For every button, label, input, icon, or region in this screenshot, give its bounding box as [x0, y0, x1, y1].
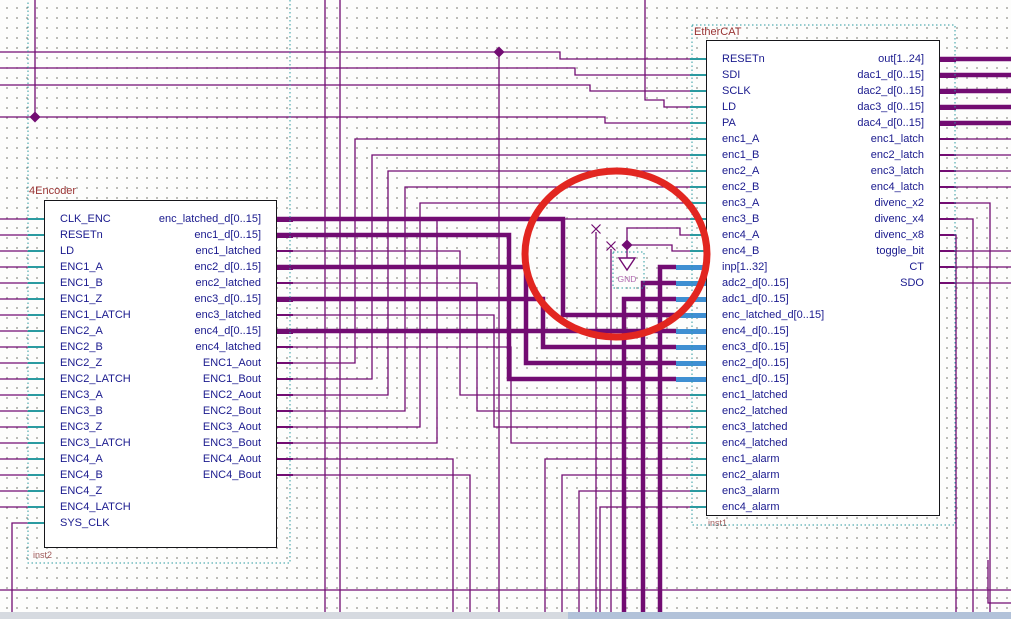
port-ethercat-enc4_A: enc4_A	[722, 229, 759, 241]
port-4encoder-ENC2_A: ENC2_A	[60, 325, 103, 337]
bus-wire[interactable]	[277, 267, 676, 363]
wire[interactable]	[940, 235, 956, 619]
pin-stub-4encoder-ENC1_B[interactable]	[28, 282, 44, 284]
pin-stub-ethercat-SDI[interactable]	[690, 74, 706, 76]
wire[interactable]	[545, 459, 690, 619]
port-4encoder-ENC1_LATCH: ENC1_LATCH	[60, 309, 131, 321]
pin-stub-4encoder-ENC4_A[interactable]	[28, 458, 44, 460]
block-title-4encoder: 4Encoder	[29, 185, 76, 197]
wire[interactable]	[988, 560, 1011, 603]
port-ethercat-enc1_A: enc1_A	[722, 133, 759, 145]
block-title-ethercat: EtherCAT	[694, 26, 741, 38]
pin-stub-4encoder-ENC1_A[interactable]	[28, 266, 44, 268]
wire[interactable]	[277, 155, 690, 379]
port-4encoder-SYS_CLK: SYS_CLK	[60, 517, 110, 529]
pin-stub-4encoder-enc4_d[0..15][interactable]	[277, 329, 293, 334]
port-4encoder-ENC3_LATCH: ENC3_LATCH	[60, 437, 131, 449]
port-ethercat-divenc_x8: divenc_x8	[874, 229, 924, 241]
port-4encoder-enc4_latched: enc4_latched	[196, 341, 261, 353]
port-4encoder-ENC3_B: ENC3_B	[60, 405, 103, 417]
port-ethercat-SCLK: SCLK	[722, 85, 751, 97]
port-4encoder-enc2_latched: enc2_latched	[196, 277, 261, 289]
port-4encoder-ENC3_Bout: ENC3_Bout	[203, 437, 261, 449]
pin-stub-ethercat-enc4_alarm[interactable]	[690, 506, 706, 508]
pin-stub-ethercat-PA[interactable]	[690, 122, 706, 124]
port-ethercat-inp[1..32]: inp[1..32]	[722, 261, 767, 273]
no-connect-marker	[607, 242, 616, 251]
pin-stub-4encoder-ENC3_LATCH[interactable]	[28, 442, 44, 444]
pin-stub-4encoder-enc1_latched[interactable]	[277, 250, 293, 252]
port-4encoder-enc_latched_d[0..15]: enc_latched_d[0..15]	[159, 213, 261, 225]
pin-stub-ethercat-LD[interactable]	[690, 106, 706, 108]
pin-stub-ethercat-enc3_alarm[interactable]	[690, 490, 706, 492]
pin-stub-ethercat-out[1..24][interactable]	[940, 57, 956, 62]
gnd-symbol-icon[interactable]	[619, 258, 635, 270]
bus-wire[interactable]	[277, 299, 676, 347]
port-ethercat-enc4_alarm: enc4_alarm	[722, 501, 779, 513]
wire[interactable]	[277, 187, 690, 411]
pin-stub-4encoder-ENC4_B[interactable]	[28, 474, 44, 476]
port-ethercat-RESETn: RESETn	[722, 53, 765, 65]
pin-stub-ethercat-adc2_d[0..15][interactable]	[676, 281, 706, 286]
pin-stub-ethercat-SCLK[interactable]	[690, 90, 706, 92]
port-ethercat-enc4_d[0..15]: enc4_d[0..15]	[722, 325, 789, 337]
pin-stub-4encoder-ENC2_LATCH[interactable]	[28, 378, 44, 380]
port-ethercat-enc1_latched: enc1_latched	[722, 389, 787, 401]
port-ethercat-toggle_bit: toggle_bit	[876, 245, 924, 257]
junction-dot	[622, 240, 633, 251]
pin-stub-ethercat-divenc_x4[interactable]	[940, 218, 956, 220]
port-4encoder-CLK_ENC: CLK_ENC	[60, 213, 111, 225]
no-connect-marker	[592, 225, 601, 234]
instance-label-ethercat: inst1	[708, 518, 727, 528]
pin-stub-ethercat-enc1_alarm[interactable]	[690, 458, 706, 460]
port-4encoder-enc3_d[0..15]: enc3_d[0..15]	[194, 293, 261, 305]
port-4encoder-ENC2_B: ENC2_B	[60, 341, 103, 353]
pin-stub-ethercat-enc2_d[0..15][interactable]	[676, 361, 706, 366]
wire[interactable]	[0, 52, 690, 59]
selection-box	[613, 252, 644, 288]
port-4encoder-ENC2_Z: ENC2_Z	[60, 357, 102, 369]
port-4encoder-ENC1_Aout: ENC1_Aout	[203, 357, 261, 369]
port-4encoder-ENC1_Bout: ENC1_Bout	[203, 373, 261, 385]
wire[interactable]	[562, 475, 690, 619]
pin-stub-4encoder-ENC2_Bout[interactable]	[277, 410, 293, 412]
port-4encoder-ENC1_A: ENC1_A	[60, 261, 103, 273]
port-ethercat-enc1_B: enc1_B	[722, 149, 759, 161]
pin-stub-4encoder-enc3_d[0..15][interactable]	[277, 297, 293, 302]
pin-stub-ethercat-enc4_latched[interactable]	[690, 442, 706, 444]
port-ethercat-out[1..24]: out[1..24]	[878, 53, 924, 65]
port-4encoder-ENC2_Aout: ENC2_Aout	[203, 389, 261, 401]
port-ethercat-enc1_d[0..15]: enc1_d[0..15]	[722, 373, 789, 385]
pin-stub-4encoder-LD[interactable]	[28, 250, 44, 252]
port-ethercat-LD: LD	[722, 101, 736, 113]
port-ethercat-dac2_d[0..15]: dac2_d[0..15]	[857, 85, 924, 97]
port-ethercat-enc4_latch: enc4_latch	[871, 181, 924, 193]
pin-stub-ethercat-enc_latched_d[0..15][interactable]	[676, 313, 706, 318]
pin-stub-4encoder-enc2_d[0..15][interactable]	[277, 265, 293, 270]
bus-wire[interactable]	[660, 267, 676, 619]
port-4encoder-ENC4_B: ENC4_B	[60, 469, 103, 481]
port-ethercat-enc3_alarm: enc3_alarm	[722, 485, 779, 497]
pin-stub-4encoder-ENC3_A[interactable]	[28, 394, 44, 396]
port-ethercat-enc4_latched: enc4_latched	[722, 437, 787, 449]
port-4encoder-ENC2_LATCH: ENC2_LATCH	[60, 373, 131, 385]
pin-stub-ethercat-enc2_A[interactable]	[690, 170, 706, 172]
port-ethercat-enc1_alarm: enc1_alarm	[722, 453, 779, 465]
port-ethercat-SDO: SDO	[900, 277, 924, 289]
wire[interactable]	[645, 0, 690, 107]
pin-stub-ethercat-enc2_alarm[interactable]	[690, 474, 706, 476]
gnd-symbol-label: GND	[618, 274, 637, 284]
wire[interactable]	[579, 491, 690, 619]
port-4encoder-ENC4_A: ENC4_A	[60, 453, 103, 465]
pin-stub-4encoder-ENC1_Aout[interactable]	[277, 362, 293, 364]
port-4encoder-LD: LD	[60, 245, 74, 257]
port-4encoder-enc4_d[0..15]: enc4_d[0..15]	[194, 325, 261, 337]
port-4encoder-enc1_latched: enc1_latched	[196, 245, 261, 257]
port-ethercat-enc2_latched: enc2_latched	[722, 405, 787, 417]
port-ethercat-adc1_d[0..15]: adc1_d[0..15]	[722, 293, 789, 305]
pin-stub-ethercat-enc2_latch[interactable]	[940, 154, 956, 156]
wire[interactable]	[277, 139, 690, 363]
port-ethercat-enc2_d[0..15]: enc2_d[0..15]	[722, 357, 789, 369]
port-ethercat-CT: CT	[909, 261, 924, 273]
pin-stub-ethercat-enc3_latched[interactable]	[690, 426, 706, 428]
pin-stub-4encoder-ENC1_Z[interactable]	[28, 298, 44, 300]
port-ethercat-enc2_A: enc2_A	[722, 165, 759, 177]
pin-stub-ethercat-enc3_latch[interactable]	[940, 170, 956, 172]
port-ethercat-enc3_d[0..15]: enc3_d[0..15]	[722, 341, 789, 353]
pin-stub-ethercat-dac2_d[0..15][interactable]	[940, 89, 956, 94]
pin-stub-4encoder-ENC4_Aout[interactable]	[277, 458, 293, 460]
bus-wire[interactable]	[277, 235, 676, 379]
port-4encoder-ENC4_Z: ENC4_Z	[60, 485, 102, 497]
pin-stub-ethercat-dac1_d[0..15][interactable]	[940, 73, 956, 78]
wire[interactable]	[277, 171, 690, 395]
pin-stub-4encoder-ENC3_Aout[interactable]	[277, 426, 293, 428]
port-4encoder-enc1_d[0..15]: enc1_d[0..15]	[194, 229, 261, 241]
port-4encoder-ENC4_Aout: ENC4_Aout	[203, 453, 261, 465]
pin-stub-4encoder-ENC2_Aout[interactable]	[277, 394, 293, 396]
pin-stub-ethercat-enc1_latch[interactable]	[940, 138, 956, 140]
pin-stub-ethercat-toggle_bit[interactable]	[940, 250, 956, 252]
pin-stub-ethercat-RESETn[interactable]	[690, 58, 706, 60]
pin-stub-ethercat-enc1_A[interactable]	[690, 138, 706, 140]
port-4encoder-enc2_d[0..15]: enc2_d[0..15]	[194, 261, 261, 273]
pin-stub-ethercat-adc1_d[0..15][interactable]	[676, 297, 706, 302]
pin-stub-4encoder-CLK_ENC[interactable]	[28, 218, 44, 220]
port-ethercat-enc1_latch: enc1_latch	[871, 133, 924, 145]
pin-stub-4encoder-ENC4_Z[interactable]	[28, 490, 44, 492]
schematic-canvas: 4Encoderinst2CLK_ENCRESETnLDENC1_AENC1_B…	[0, 0, 1011, 619]
pin-stub-ethercat-enc4_B[interactable]	[690, 250, 706, 252]
pin-stub-4encoder-enc2_latched[interactable]	[277, 282, 293, 284]
port-4encoder-ENC1_Z: ENC1_Z	[60, 293, 102, 305]
wire[interactable]	[277, 203, 690, 427]
pin-stub-ethercat-enc3_B[interactable]	[690, 218, 706, 220]
bus-wire[interactable]	[277, 219, 676, 315]
pin-stub-ethercat-enc2_B[interactable]	[690, 186, 706, 188]
port-4encoder-ENC1_B: ENC1_B	[60, 277, 103, 289]
wire[interactable]	[277, 347, 690, 443]
pin-stub-ethercat-enc3_A[interactable]	[690, 202, 706, 204]
wire[interactable]	[627, 245, 690, 251]
port-ethercat-enc2_B: enc2_B	[722, 181, 759, 193]
pin-stub-4encoder-ENC3_Bout[interactable]	[277, 442, 293, 444]
pin-stub-4encoder-ENC4_Bout[interactable]	[277, 474, 293, 476]
pin-stub-ethercat-SDO[interactable]	[940, 282, 956, 284]
pin-stub-ethercat-enc4_d[0..15][interactable]	[676, 329, 706, 334]
pin-stub-4encoder-ENC3_B[interactable]	[28, 410, 44, 412]
pin-stub-4encoder-ENC4_LATCH[interactable]	[28, 506, 44, 508]
port-ethercat-adc2_d[0..15]: adc2_d[0..15]	[722, 277, 789, 289]
port-4encoder-ENC3_Aout: ENC3_Aout	[203, 421, 261, 433]
pin-stub-4encoder-enc1_d[0..15][interactable]	[277, 233, 293, 238]
pin-stub-ethercat-enc1_d[0..15][interactable]	[676, 377, 706, 382]
wire[interactable]	[277, 251, 690, 395]
pin-stub-4encoder-ENC1_Bout[interactable]	[277, 378, 293, 380]
port-ethercat-PA: PA	[722, 117, 736, 129]
port-ethercat-enc3_latched: enc3_latched	[722, 421, 787, 433]
port-4encoder-ENC3_A: ENC3_A	[60, 389, 103, 401]
junction-dot	[30, 112, 41, 123]
wire[interactable]	[277, 459, 453, 619]
pin-stub-ethercat-inp[1..32][interactable]	[676, 265, 706, 270]
pin-stub-ethercat-enc1_B[interactable]	[690, 154, 706, 156]
wire[interactable]	[277, 315, 690, 427]
pin-stub-ethercat-enc4_latch[interactable]	[940, 186, 956, 188]
port-4encoder-RESETn: RESETn	[60, 229, 103, 241]
h-scrollbar-thumb[interactable]	[568, 612, 1011, 619]
pin-stub-ethercat-dac4_d[0..15][interactable]	[940, 121, 956, 126]
pin-stub-ethercat-divenc_x8[interactable]	[940, 234, 956, 236]
port-ethercat-dac4_d[0..15]: dac4_d[0..15]	[857, 117, 924, 129]
instance-label-4encoder: inst2	[33, 550, 52, 560]
port-ethercat-enc3_B: enc3_B	[722, 213, 759, 225]
pin-stub-4encoder-enc3_latched[interactable]	[277, 314, 293, 316]
pin-stub-ethercat-enc4_A[interactable]	[690, 234, 706, 236]
junction-dot	[494, 47, 505, 58]
port-ethercat-divenc_x4: divenc_x4	[874, 213, 924, 225]
pin-stub-ethercat-enc3_d[0..15][interactable]	[676, 345, 706, 350]
bus-wire[interactable]	[643, 283, 676, 619]
bus-wire[interactable]	[624, 299, 676, 619]
pin-stub-4encoder-ENC2_B[interactable]	[28, 346, 44, 348]
wire[interactable]	[600, 507, 690, 619]
pin-stub-4encoder-RESETn[interactable]	[28, 234, 44, 236]
wire[interactable]	[12, 523, 28, 619]
port-4encoder-ENC3_Z: ENC3_Z	[60, 421, 102, 433]
port-ethercat-dac1_d[0..15]: dac1_d[0..15]	[857, 69, 924, 81]
pin-stub-ethercat-enc1_latched[interactable]	[690, 394, 706, 396]
wire[interactable]	[0, 117, 690, 123]
port-4encoder-ENC4_LATCH: ENC4_LATCH	[60, 501, 131, 513]
port-ethercat-enc2_alarm: enc2_alarm	[722, 469, 779, 481]
port-ethercat-divenc_x2: divenc_x2	[874, 197, 924, 209]
port-ethercat-dac3_d[0..15]: dac3_d[0..15]	[857, 101, 924, 113]
wire[interactable]	[277, 219, 690, 443]
pin-stub-4encoder-enc_latched_d[0..15][interactable]	[277, 217, 293, 222]
port-4encoder-ENC2_Bout: ENC2_Bout	[203, 405, 261, 417]
port-4encoder-ENC4_Bout: ENC4_Bout	[203, 469, 261, 481]
port-ethercat-enc4_B: enc4_B	[722, 245, 759, 257]
port-ethercat-enc2_latch: enc2_latch	[871, 149, 924, 161]
wire[interactable]	[0, 68, 690, 75]
pin-stub-ethercat-divenc_x2[interactable]	[940, 202, 956, 204]
pin-stub-4encoder-enc4_latched[interactable]	[277, 346, 293, 348]
pin-stub-4encoder-ENC3_Z[interactable]	[28, 426, 44, 428]
wire[interactable]	[0, 85, 690, 91]
pin-stub-ethercat-dac3_d[0..15][interactable]	[940, 105, 956, 110]
port-ethercat-enc3_latch: enc3_latch	[871, 165, 924, 177]
wire[interactable]	[940, 219, 973, 619]
port-ethercat-enc_latched_d[0..15]: enc_latched_d[0..15]	[722, 309, 824, 321]
pin-stub-4encoder-ENC2_A[interactable]	[28, 330, 44, 332]
wire[interactable]	[277, 475, 470, 619]
wire[interactable]	[627, 228, 690, 245]
wire[interactable]	[277, 283, 690, 411]
port-ethercat-enc3_A: enc3_A	[722, 197, 759, 209]
pin-stub-4encoder-SYS_CLK[interactable]	[28, 522, 44, 524]
pin-stub-4encoder-ENC2_Z[interactable]	[28, 362, 44, 364]
pin-stub-ethercat-CT[interactable]	[940, 266, 956, 268]
pin-stub-4encoder-ENC1_LATCH[interactable]	[28, 314, 44, 316]
pin-stub-ethercat-enc2_latched[interactable]	[690, 410, 706, 412]
port-ethercat-SDI: SDI	[722, 69, 740, 81]
port-4encoder-enc3_latched: enc3_latched	[196, 309, 261, 321]
